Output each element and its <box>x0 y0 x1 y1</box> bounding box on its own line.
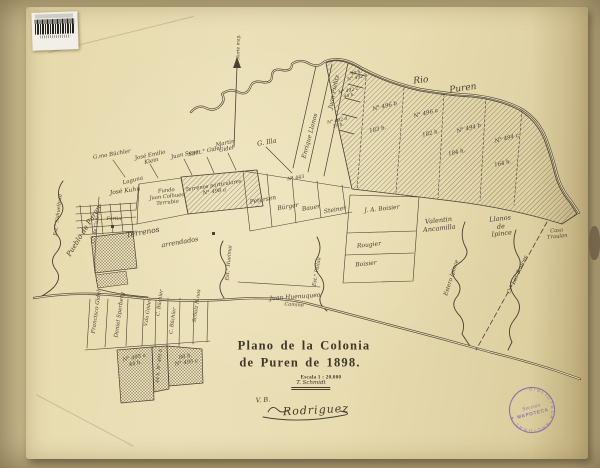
approval-initials: V. B. <box>255 396 270 405</box>
map-label: Fortin <box>107 217 122 223</box>
map-label: Llanos de Ipince <box>489 214 513 239</box>
map-label: Fundo Juan Colhueo Terrubio <box>149 186 186 208</box>
barcode-number-strip <box>40 34 70 38</box>
town-south-block <box>96 271 128 288</box>
scan-background: Norte mag.RioPurenN° 496 b183 h.N° 496 a… <box>0 0 600 468</box>
barcode-bars <box>35 18 75 34</box>
map-title-line1: Plano de la Colonia <box>238 339 371 354</box>
north-arrow <box>233 57 241 147</box>
barcode-sticker <box>31 11 78 51</box>
map-label: Norte mag. <box>236 34 241 59</box>
map-label: Camino <box>284 302 304 309</box>
map-label: Rio <box>413 75 429 87</box>
map-title-line2: de Puren de 1898. <box>239 356 360 371</box>
map-label: Casa Traulen <box>546 227 568 241</box>
surveyor-signature: T. Schmidt <box>291 380 330 390</box>
